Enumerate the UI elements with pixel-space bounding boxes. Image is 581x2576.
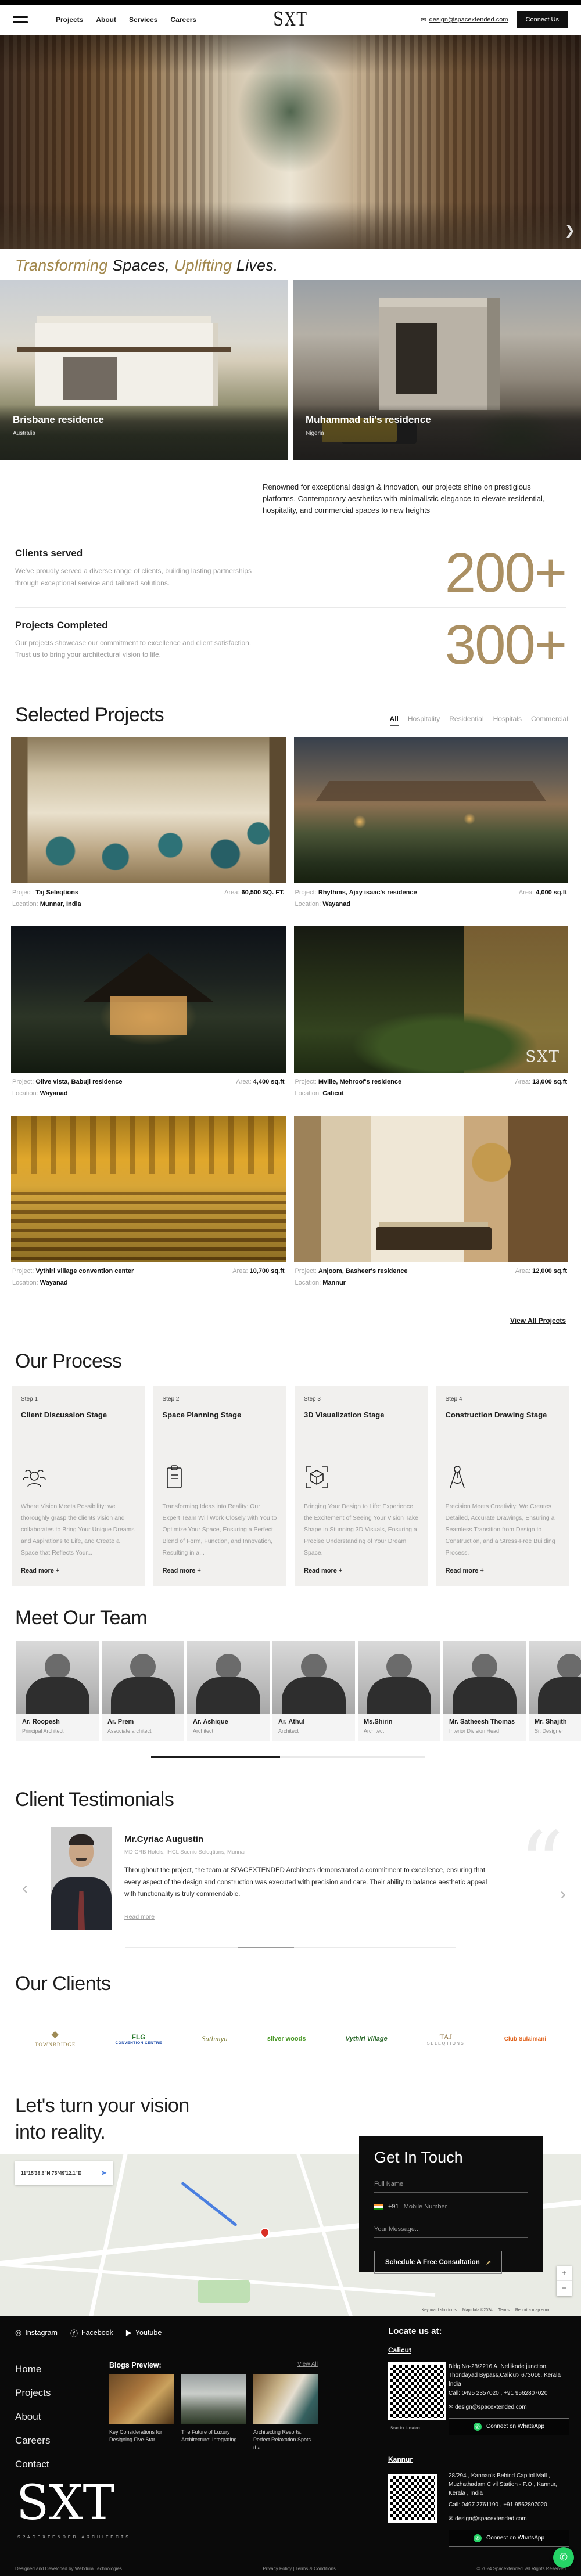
team-carousel[interactable]: Ar. RoopeshPrincipal Architect Ar. PremA…	[0, 1641, 581, 1741]
kannur-email[interactable]: ✉ design@spacextended.com	[449, 2514, 572, 2523]
stat-row: Projects Completed Our projects showcase…	[15, 608, 566, 679]
intro-paragraph: Renowned for exceptional design & innova…	[263, 481, 566, 516]
slide-location: Australia	[13, 430, 275, 437]
blog-card[interactable]: Key Considerations for Designing Five-St…	[109, 2374, 174, 2452]
project-location: Wayanad	[322, 901, 350, 908]
featured-carousel: Brisbane residence Australia Muhammad al…	[0, 280, 581, 460]
phone-country-code: +91	[388, 2203, 399, 2210]
envelope-icon: ✉	[449, 2404, 453, 2410]
client-logo-flg: FLGCONVENTION CENTRE	[115, 2033, 162, 2045]
team-member-card: Ms.ShirinArchitect	[358, 1641, 440, 1741]
map-attribution: Keyboard shortcuts Map data ©2024 Terms …	[422, 2308, 550, 2312]
project-image	[11, 737, 286, 883]
stat-title: Clients served	[15, 548, 265, 559]
process-section: Our Process Step 1 Client Discussion Sta…	[0, 1350, 581, 1586]
whatsapp-icon: ✆	[474, 2534, 482, 2542]
scan-for-location-label: Scan for Location	[390, 2426, 420, 2430]
instagram-link[interactable]: ◎Instagram	[15, 2328, 58, 2337]
project-name: Anjoom, Basheer's residence	[318, 1268, 408, 1275]
read-more-link[interactable]: Read more +	[21, 1567, 136, 1574]
calicut-address: Bldg No-28/2216 A, Nellikode junction, T…	[449, 2362, 572, 2388]
project-image	[11, 1116, 286, 1262]
connect-us-button[interactable]: Connect Us	[517, 11, 568, 28]
drafting-compass-icon	[446, 1465, 561, 1493]
filter-all[interactable]: All	[390, 715, 399, 726]
stat-desc: Our projects showcase our commitment to …	[15, 637, 265, 661]
office-kannur-link[interactable]: Kannur	[388, 2455, 413, 2463]
contact-section: Let's turn your vision into reality. 11°…	[0, 2093, 581, 2316]
footer-nav-about[interactable]: About	[15, 2411, 51, 2423]
project-image	[11, 926, 286, 1073]
project-image: SXT	[294, 926, 569, 1073]
calicut-whatsapp-button[interactable]: ✆Connect on WhatsApp	[449, 2418, 569, 2435]
facebook-link[interactable]: ⓕFacebook	[70, 2327, 113, 2338]
filter-commercial[interactable]: Commercial	[531, 715, 568, 726]
blogs-heading: Blogs Preview:	[109, 2361, 162, 2369]
filter-hospitals[interactable]: Hospitals	[493, 715, 522, 726]
nav-careers[interactable]: Careers	[170, 16, 196, 24]
testimonial-quote: Throughout the project, the team at SPAC…	[124, 1865, 496, 1901]
team-member-photo	[16, 1641, 99, 1714]
team-member-photo	[187, 1641, 270, 1714]
top-strip	[0, 0, 581, 5]
envelope-icon: ✉	[449, 2516, 453, 2522]
kannur-qr-code	[388, 2474, 437, 2523]
team-member-photo	[102, 1641, 184, 1714]
mobile-number-input[interactable]	[404, 2199, 528, 2215]
carousel-slide[interactable]: Muhammad ali's residence Nigeria	[293, 280, 581, 460]
directions-icon[interactable]: ➤	[101, 2168, 107, 2178]
testimonials-section: Client Testimonials “ ‹ Mr.Cyriac August…	[0, 1789, 581, 1948]
project-name: Rhythms, Ajay isaac's residence	[318, 889, 417, 896]
map-route	[181, 2182, 238, 2227]
testimonial-name: Mr.Cyriac Augustin	[124, 1834, 496, 1844]
project-location: Wayanad	[40, 1090, 68, 1097]
footer-logo-subtext: SPACEXTENDED ARCHITECTS	[17, 2535, 131, 2539]
stat-value: 200+	[445, 548, 566, 599]
people-icon	[21, 1467, 136, 1493]
blog-thumbnail	[109, 2374, 174, 2424]
process-step-card: Step 4 Construction Drawing Stage Precis…	[436, 1386, 570, 1586]
project-area: 12,000 sq.ft	[532, 1268, 567, 1275]
project-card[interactable]: Project: Vythiri village convention cent…	[11, 1116, 286, 1300]
nav-services[interactable]: Services	[129, 16, 157, 24]
read-more-link[interactable]: Read more +	[304, 1567, 419, 1574]
team-member-card: Ar. RoopeshPrincipal Architect	[16, 1641, 99, 1741]
stats-section: Clients served We've proudly served a di…	[15, 536, 566, 679]
view-all-projects-link[interactable]: View All Projects	[510, 1316, 566, 1325]
project-card[interactable]: Project: Olive vista, Babuji residence A…	[11, 926, 286, 1111]
carousel-slide[interactable]: Brisbane residence Australia	[0, 280, 288, 460]
header-email-link[interactable]: ✉design@spacextended.com	[421, 16, 508, 24]
client-logo-club-sulaimani: Club Sulaimani	[504, 2036, 546, 2042]
team-member-photo	[529, 1641, 581, 1714]
slide-title: Muhammad ali's residence	[306, 414, 568, 426]
locate-heading: Locate us at:	[388, 2326, 442, 2336]
form-heading: Get In Touch	[374, 2149, 528, 2167]
kannur-phone[interactable]: Call: 0497 2761190 , +91 9562807020	[449, 2501, 572, 2509]
project-card[interactable]: Project: Taj Seleqtions Area: 60,500 SQ.…	[11, 737, 286, 922]
hamburger-menu-icon[interactable]	[13, 16, 28, 23]
whatsapp-icon: ✆	[474, 2423, 482, 2431]
footer: ◎Instagram ⓕFacebook ▶Youtube Home Proje…	[0, 2316, 581, 2576]
facebook-icon: ⓕ	[70, 2327, 78, 2338]
brand-logo[interactable]: SXT	[273, 11, 308, 28]
whatsapp-icon: ✆	[560, 2552, 568, 2563]
project-area: 4,400 sq.ft	[253, 1078, 285, 1085]
blogs-view-all-link[interactable]: View All	[297, 2361, 318, 2368]
project-location: Mannur	[322, 1279, 346, 1286]
read-more-link[interactable]: Read more +	[446, 1567, 561, 1574]
nav-about[interactable]: About	[96, 16, 116, 24]
team-member-card: Mr. ShajithSr. Designer	[529, 1641, 581, 1741]
read-more-link[interactable]: Read more +	[163, 1567, 278, 1574]
footer-nav-projects[interactable]: Projects	[15, 2387, 51, 2399]
diamond-icon: ◆	[35, 2030, 76, 2039]
blog-card[interactable]: Architecting Resorts: Perfect Relaxation…	[253, 2374, 318, 2452]
project-filters: All Hospitality Residential Hospitals Co…	[390, 715, 568, 726]
kannur-address: 28/294 , Kannan's Behind Capitol Mall , …	[449, 2471, 572, 2498]
project-location: Calicut	[322, 1090, 344, 1097]
stat-row: Clients served We've proudly served a di…	[15, 536, 566, 607]
testimonial-read-more-link[interactable]: Read more	[124, 1913, 155, 1920]
project-area: 4,000 sq.ft	[536, 889, 567, 896]
footer-bottom-bar: Designed and Developed by Webdura Techno…	[0, 2566, 581, 2571]
hero-next-arrow-icon[interactable]: ❯	[565, 223, 575, 238]
testimonial-title: MD CRB Hotels, IHCL Scenic Seleqtions, M…	[124, 1849, 496, 1855]
testimonial-next-arrow-icon[interactable]: ›	[560, 1886, 566, 1903]
project-image	[294, 1116, 569, 1262]
stat-title: Projects Completed	[15, 620, 265, 631]
developer-credit[interactable]: Designed and Developed by Webdura Techno…	[15, 2566, 122, 2571]
team-section: Meet Our Team Ar. RoopeshPrincipal Archi…	[0, 1607, 581, 1758]
project-area: 13,000 sq.ft	[532, 1078, 567, 1085]
blog-thumbnail	[181, 2374, 246, 2424]
clients-section: Our Clients ◆TOWNBRIDGE FLGCONVENTION CE…	[0, 1973, 581, 2059]
message-input[interactable]	[374, 2221, 528, 2238]
project-name: Vythiri village convention center	[35, 1268, 134, 1275]
testimonial-photo	[51, 1827, 112, 1930]
project-image	[294, 737, 569, 883]
clipboard-icon	[163, 1465, 278, 1493]
clients-heading: Our Clients	[15, 1973, 581, 1995]
process-heading: Our Process	[15, 1350, 581, 1373]
footer-nav-careers[interactable]: Careers	[15, 2435, 51, 2447]
team-member-photo	[358, 1641, 440, 1714]
blog-thumbnail	[253, 2374, 318, 2424]
footer-logo: SXT	[16, 2480, 114, 2527]
footer-nav-contact[interactable]: Contact	[15, 2459, 51, 2470]
footer-nav: Home Projects About Careers Contact	[15, 2363, 51, 2470]
map-zoom-controls: + −	[557, 2266, 572, 2296]
map-error-link[interactable]: Report a map error	[515, 2308, 550, 2312]
team-member-card: Ar. AthulArchitect	[272, 1641, 355, 1741]
client-logo-taj: TAJSELEQTIONS	[427, 2032, 465, 2046]
full-name-input[interactable]	[374, 2176, 528, 2193]
slide-location: Nigeria	[306, 430, 568, 437]
project-location: Wayanad	[40, 1279, 68, 1286]
testimonial-prev-arrow-icon[interactable]: ‹	[22, 1880, 28, 1897]
main-nav: Projects About Services Careers	[56, 16, 196, 24]
project-location: Munnar, India	[40, 901, 81, 908]
process-step-card: Step 3 3D Visualization Stage Bringing Y…	[295, 1386, 428, 1586]
arrow-up-right-icon: ↗	[486, 2258, 492, 2266]
selected-projects-heading: Selected Projects	[15, 704, 164, 726]
client-logo-vythiri: Vythiri Village	[346, 2035, 388, 2042]
blog-card[interactable]: The Future of Luxury Architecture: Integ…	[181, 2374, 246, 2452]
hero-image: ❯	[0, 35, 581, 249]
nav-projects[interactable]: Projects	[56, 16, 83, 24]
youtube-icon: ▶	[126, 2328, 132, 2337]
filter-hospitality[interactable]: Hospitality	[408, 715, 440, 726]
project-area: 10,700 sq.ft	[250, 1268, 285, 1275]
header: Projects About Services Careers SXT ✉des…	[0, 5, 581, 35]
3d-cube-icon	[304, 1465, 419, 1493]
testimonial-pager[interactable]	[125, 1947, 456, 1948]
stat-value: 300+	[445, 620, 566, 671]
team-heading: Meet Our Team	[15, 1607, 581, 1629]
team-scrollbar[interactable]	[151, 1756, 425, 1758]
map-terms-link[interactable]: Terms	[498, 2308, 510, 2312]
project-card[interactable]: Project: Rhythms, Ajay isaac's residence…	[294, 737, 569, 922]
process-step-card: Step 2 Space Planning Stage Transforming…	[153, 1386, 287, 1586]
project-card[interactable]: Project: Anjoom, Basheer's residence Are…	[294, 1116, 569, 1300]
project-name: Olive vista, Babuji residence	[35, 1078, 122, 1085]
copyright: © 2024 Spacextended. All Rights Reserved	[476, 2566, 566, 2571]
project-name: Taj Seleqtions	[35, 889, 78, 896]
team-member-photo	[272, 1641, 355, 1714]
calicut-qr-code	[388, 2362, 446, 2420]
kannur-whatsapp-button[interactable]: ✆Connect on WhatsApp	[449, 2530, 569, 2547]
keyboard-shortcuts-link[interactable]: Keyboard shortcuts	[422, 2308, 457, 2312]
stat-desc: We've proudly served a diverse range of …	[15, 565, 265, 589]
team-member-card: Ar. PremAssociate architect	[102, 1641, 184, 1741]
process-step-card: Step 1 Client Discussion Stage Where Vis…	[12, 1386, 145, 1586]
tagline: Transforming Spaces, Uplifting Lives.	[0, 249, 581, 280]
privacy-terms-links[interactable]: Privacy Policy | Terms & Conditions	[263, 2566, 336, 2571]
projects-grid: Project: Taj Seleqtions Area: 60,500 SQ.…	[11, 737, 568, 1300]
map-search-box[interactable]: 11°15'38.6"N 75°49'12.1"E ➤	[15, 2161, 113, 2185]
team-member-card: Ar. AshiqueArchitect	[187, 1641, 270, 1741]
envelope-icon: ✉	[421, 16, 426, 24]
project-card[interactable]: SXT Project: Mville, Mehroof's residence…	[294, 926, 569, 1111]
india-flag-icon	[374, 2204, 383, 2210]
zoom-in-button[interactable]: +	[557, 2266, 572, 2281]
testimonials-heading: Client Testimonials	[15, 1789, 581, 1811]
project-area: 60,500 SQ. FT.	[242, 889, 285, 896]
team-member-photo	[443, 1641, 526, 1714]
schedule-consultation-button[interactable]: Schedule A Free Consultation ↗	[374, 2251, 502, 2274]
team-member-card: Mr. Satheesh ThomasInterior Division Hea…	[443, 1641, 526, 1741]
slide-title: Brisbane residence	[13, 414, 275, 426]
project-name: Mville, Mehroof's residence	[318, 1078, 401, 1085]
get-in-touch-form: Get In Touch +91 Schedule A Free Consult…	[359, 2136, 543, 2272]
youtube-link[interactable]: ▶Youtube	[126, 2328, 162, 2337]
filter-residential[interactable]: Residential	[449, 715, 483, 726]
client-logo-sathmya: Sathmya	[202, 2034, 228, 2043]
client-logo-townbridge: ◆TOWNBRIDGE	[35, 2030, 76, 2048]
sxt-watermark: SXT	[525, 1048, 560, 1066]
zoom-out-button[interactable]: −	[557, 2281, 572, 2296]
calicut-phone[interactable]: Call: 0495 2357020 , +91 9562807020	[449, 2389, 572, 2398]
whatsapp-float-button[interactable]: ✆	[553, 2547, 574, 2568]
instagram-icon: ◎	[15, 2328, 21, 2337]
calicut-email[interactable]: ✉ design@spacextended.com	[449, 2403, 572, 2412]
office-calicut-link[interactable]: Calicut	[388, 2346, 411, 2354]
footer-nav-home[interactable]: Home	[15, 2363, 51, 2375]
client-logo-silverwoods: silver woods	[267, 2035, 306, 2042]
social-links: ◎Instagram ⓕFacebook ▶Youtube	[15, 2327, 162, 2338]
